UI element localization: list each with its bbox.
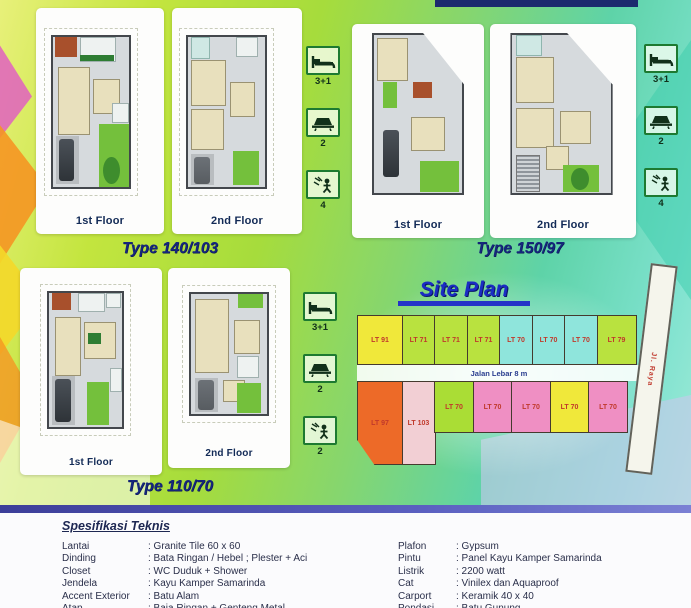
spec-value: : Kayu Kamper Samarinda (148, 578, 265, 589)
spec-value: : Panel Kayu Kamper Samarinda (456, 553, 602, 564)
spec-row: Closet: WC Duduk + Shower (62, 565, 362, 578)
shower-icon (306, 170, 340, 199)
lawn-block (87, 382, 109, 425)
room-block (191, 109, 224, 150)
stat-value: 2 (641, 136, 681, 147)
spec-label: Accent Exterior (62, 591, 148, 602)
spec-value: : Bata Ringan / Hebel ; Plester + Aci (148, 553, 307, 564)
stairs-block (516, 155, 540, 192)
stat-bedrooms: 3+1 (303, 46, 343, 87)
lawn-block (420, 161, 459, 191)
stat-value: 4 (303, 200, 343, 211)
type-label-110: Type 110/70 (40, 478, 300, 496)
street-label: Jalan Lebar 8 m (471, 369, 528, 378)
stat-bedrooms: 3+1 (641, 44, 681, 85)
stat-bathrooms: 2 (300, 354, 340, 395)
shed-block (110, 368, 122, 392)
spec-value: : Gypsum (456, 541, 499, 552)
floorplan-card-110-2nd: 2nd Floor (168, 268, 290, 468)
floor-label: 2nd Floor (172, 215, 302, 227)
lot-label: LT 70 (445, 404, 463, 411)
floor-label: 1st Floor (36, 215, 164, 227)
spec-row: Pondasi: Batu Gunung (398, 603, 688, 608)
car-shape (59, 139, 74, 181)
bath-block (516, 35, 542, 56)
lot-label: LT 70 (599, 404, 617, 411)
site-plan-top-row: LT 91 LT 71 LT 71 LT 71 LT 70 LT 70 LT 7… (357, 315, 637, 365)
counter-block (88, 333, 101, 344)
spec-label: Closet (62, 566, 148, 577)
floor-plan-110-1st (47, 291, 124, 430)
section-divider-bar (0, 505, 691, 513)
spec-value: : Granite Tile 60 x 60 (148, 541, 240, 552)
bathroom-icon (303, 354, 337, 383)
floor-plan-110-2nd (189, 292, 270, 416)
roof-accent (52, 293, 71, 311)
bath-block (106, 293, 121, 308)
room-block (234, 320, 260, 353)
spec-label: Jendela (62, 578, 148, 589)
bath-block (236, 37, 258, 57)
lawn-block (383, 82, 397, 107)
lot: LT 71 (434, 315, 468, 365)
site-plan-bottom-row: LT 97 LT 103 LT 70 LT 70 LT 70 LT 70 LT … (357, 381, 628, 465)
room-block (195, 299, 229, 373)
floor-label: 2nd Floor (490, 219, 636, 231)
stat-shower: 4 (303, 170, 343, 211)
floor-plan-150-1st (372, 33, 464, 196)
stat-shower: 2 (300, 416, 340, 457)
stat-value: 2 (300, 384, 340, 395)
bush-shape (103, 157, 120, 184)
stat-bedrooms: 3+1 (300, 292, 340, 333)
stat-bathrooms: 2 (641, 106, 681, 147)
spec-row: Carport: Keramik 40 x 40 (398, 590, 688, 603)
room-block (191, 60, 225, 107)
spec-value: : Batu Gunung (456, 603, 521, 608)
lot: LT 70 (564, 315, 598, 365)
stat-value: 2 (303, 138, 343, 149)
floorplan-card-140-1st: 1st Floor (36, 8, 164, 234)
spec-label: Atap (62, 603, 148, 608)
spec-row: Listrik: 2200 watt (398, 565, 688, 578)
floorplan-card-150-2nd: 2nd Floor (490, 24, 636, 238)
brochure-page: 1st Floor 2nd Floor 3+1 2 (0, 0, 691, 608)
lot-label: LT 70 (572, 337, 590, 344)
lot: LT 79 (597, 315, 637, 365)
counter-block (80, 55, 113, 61)
shower-icon (644, 168, 678, 197)
bath-block (237, 356, 259, 377)
lot-label: LT 70 (561, 404, 579, 411)
stat-value: 3+1 (303, 76, 343, 87)
bathroom-icon (644, 106, 678, 135)
street-band: Jalan Lebar 8 m (357, 365, 641, 381)
specs-heading: Spesifikasi Teknis (62, 519, 170, 533)
bed-icon (303, 292, 337, 321)
floorplan-card-140-2nd: 2nd Floor (172, 8, 302, 234)
type-label-140: Type 140/103 (36, 240, 304, 258)
spec-row: Accent Exterior: Batu Alam (62, 590, 362, 603)
room-block (516, 108, 553, 148)
floor-label: 1st Floor (20, 457, 162, 468)
car-shape (198, 380, 213, 410)
bath-block (112, 103, 129, 123)
lawn-block (233, 151, 259, 185)
specs-left-column: Lantai: Granite Tile 60 x 60 Dinding: Ba… (62, 540, 362, 608)
room-block (516, 57, 553, 103)
lot: LT 70 (532, 315, 566, 365)
room-block (58, 67, 90, 135)
lot-label: LT 71 (442, 337, 460, 344)
spec-label: Cat (398, 578, 456, 589)
spec-label: Lantai (62, 541, 148, 552)
lot: LT 70 (511, 381, 551, 433)
lot-label: LT 71 (410, 337, 428, 344)
room-block (55, 317, 82, 376)
roof-accent (55, 37, 78, 56)
lot: LT 70 (588, 381, 628, 433)
room-block (230, 82, 255, 117)
spec-value: : Baja Ringan + Genteng Metal (148, 603, 285, 608)
floor-plan-150-2nd (510, 33, 612, 196)
floor-label: 1st Floor (352, 219, 484, 231)
type-label-150: Type 150/97 (400, 240, 640, 258)
room-block (411, 117, 445, 151)
stat-value: 4 (641, 198, 681, 209)
bed-icon (644, 44, 678, 73)
spec-value: : WC Duduk + Shower (148, 566, 247, 577)
bush-shape (571, 168, 589, 190)
spec-row: Plafon: Gypsum (398, 540, 688, 553)
lot: LT 103 (402, 381, 436, 465)
lot: LT 70 (434, 381, 474, 433)
specs-section: Spesifikasi Teknis Lantai: Granite Tile … (0, 513, 691, 608)
lawn-block (238, 294, 262, 308)
lot-label: LT 79 (608, 337, 626, 344)
spec-label: Dinding (62, 553, 148, 564)
lot-label: LT 103 (408, 420, 430, 427)
spec-value: : Keramik 40 x 40 (456, 591, 534, 602)
lawn-block (237, 383, 261, 413)
room-block (560, 111, 591, 145)
bg-shape-magenta (0, 36, 32, 146)
lot: LT 71 (402, 315, 436, 365)
site-plan-title-underline (398, 301, 530, 306)
spec-label: Plafon (398, 541, 456, 552)
spec-label: Listrik (398, 566, 456, 577)
stat-bathrooms: 2 (303, 108, 343, 149)
spec-value: : Batu Alam (148, 591, 199, 602)
stat-value: 3+1 (300, 322, 340, 333)
kitchen-block (78, 293, 105, 313)
bed-icon (306, 46, 340, 75)
top-banner-bar (435, 0, 638, 7)
lot-label: LT 70 (507, 337, 525, 344)
lot: LT 70 (499, 315, 533, 365)
roof-accent (413, 82, 432, 98)
lot: LT 70 (550, 381, 590, 433)
spec-row: Dinding: Bata Ringan / Hebel ; Plester +… (62, 553, 362, 566)
spec-row: Atap: Baja Ringan + Genteng Metal (62, 603, 362, 608)
site-plan-title: Site Plan (384, 278, 544, 302)
floorplan-card-110-1st: 1st Floor (20, 268, 162, 475)
specs-right-column: Plafon: Gypsum Pintu: Panel Kayu Kamper … (398, 540, 688, 608)
car-shape (55, 379, 71, 422)
spec-label: Carport (398, 591, 456, 602)
floor-plan-140-1st (51, 35, 130, 189)
stat-value: 2 (300, 446, 340, 457)
floorplan-card-150-1st: 1st Floor (352, 24, 484, 238)
lot: LT 71 (467, 315, 501, 365)
car-shape (194, 157, 209, 184)
lot-label: LT 97 (371, 420, 389, 427)
lot: LT 91 (357, 315, 403, 365)
road-label: Jl. Raya (646, 351, 657, 386)
lot-corner: LT 97 (357, 381, 403, 465)
car-shape (383, 130, 399, 178)
lot-label: LT 70 (484, 404, 502, 411)
spec-row: Pintu: Panel Kayu Kamper Samarinda (398, 553, 688, 566)
spec-value: : 2200 watt (456, 566, 505, 577)
floor-plan-140-2nd (186, 35, 267, 189)
lot-label: LT 70 (522, 404, 540, 411)
lot-label: LT 70 (540, 337, 558, 344)
spec-value: : Vinilex dan Aquaproof (456, 578, 559, 589)
lot-label: LT 71 (475, 337, 493, 344)
lot-label: LT 91 (371, 337, 389, 344)
stat-shower: 4 (641, 168, 681, 209)
spec-label: Pondasi (398, 603, 456, 608)
floor-label: 2nd Floor (168, 448, 290, 459)
room-block (377, 38, 407, 81)
spec-row: Jendela: Kayu Kamper Samarinda (62, 578, 362, 591)
shower-icon (303, 416, 337, 445)
spec-row: Lantai: Granite Tile 60 x 60 (62, 540, 362, 553)
spec-row: Cat: Vinilex dan Aquaproof (398, 578, 688, 591)
bath-block (191, 37, 210, 58)
lot: LT 70 (473, 381, 513, 433)
stat-value: 3+1 (641, 74, 681, 85)
bathroom-icon (306, 108, 340, 137)
spec-label: Pintu (398, 553, 456, 564)
